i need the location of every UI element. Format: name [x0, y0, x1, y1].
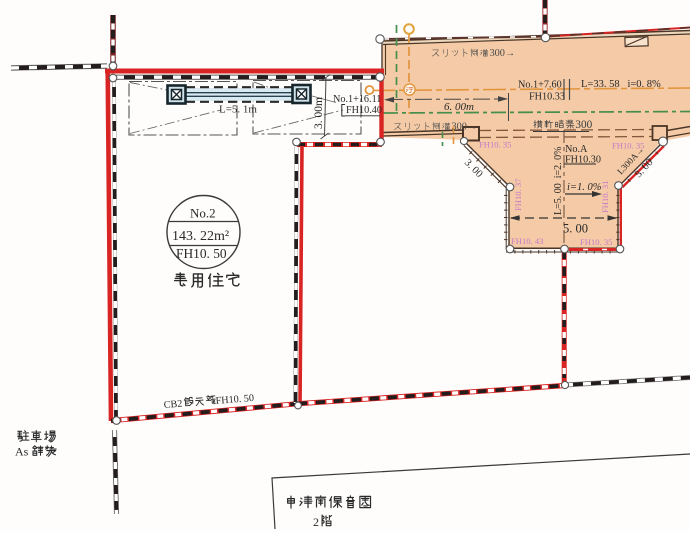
svg-text:FH10. 50: FH10. 50 [176, 246, 227, 261]
svg-text:FH10.40: FH10.40 [346, 105, 382, 116]
svg-text:FH10. 31: FH10. 31 [600, 181, 610, 213]
svg-text:L=33. 58 i=0. 8%: L=33. 58 i=0. 8% [581, 79, 661, 90]
svg-text:FH10.33: FH10.33 [529, 92, 565, 103]
svg-text:No.A: No.A [565, 144, 588, 155]
svg-text:300: 300 [575, 119, 592, 131]
svg-text:FH10. 43: FH10. 43 [511, 236, 543, 246]
svg-text:L=5. 00 i=2. 0%: L=5. 00 i=2. 0% [553, 147, 564, 216]
svg-text:No.2: No.2 [190, 206, 216, 221]
svg-text:2: 2 [313, 515, 319, 529]
svg-text:6. 00m: 6. 00m [444, 101, 474, 113]
svg-text:No.1+16.11: No.1+16.11 [333, 94, 381, 105]
svg-text:L=5. 1m: L=5. 1m [219, 104, 257, 116]
svg-text:3. 00m: 3. 00m [313, 97, 325, 129]
svg-text:No.1+7.60: No.1+7.60 [518, 80, 562, 91]
svg-text:CB2: CB2 [163, 399, 182, 411]
svg-text:300→: 300→ [452, 122, 478, 133]
svg-text:FH10. 35: FH10. 35 [612, 141, 644, 151]
svg-text:300→: 300→ [490, 48, 516, 59]
svg-text:FH10. 35: FH10. 35 [479, 140, 511, 150]
svg-text:i=1. 0%: i=1. 0% [567, 182, 602, 193]
svg-text:As: As [15, 445, 29, 459]
svg-text:143. 22m²: 143. 22m² [172, 229, 229, 244]
svg-text:5. 00: 5. 00 [563, 222, 588, 236]
svg-text:FH10. 35: FH10. 35 [580, 237, 612, 247]
svg-text:FH10. 37: FH10. 37 [513, 178, 523, 211]
